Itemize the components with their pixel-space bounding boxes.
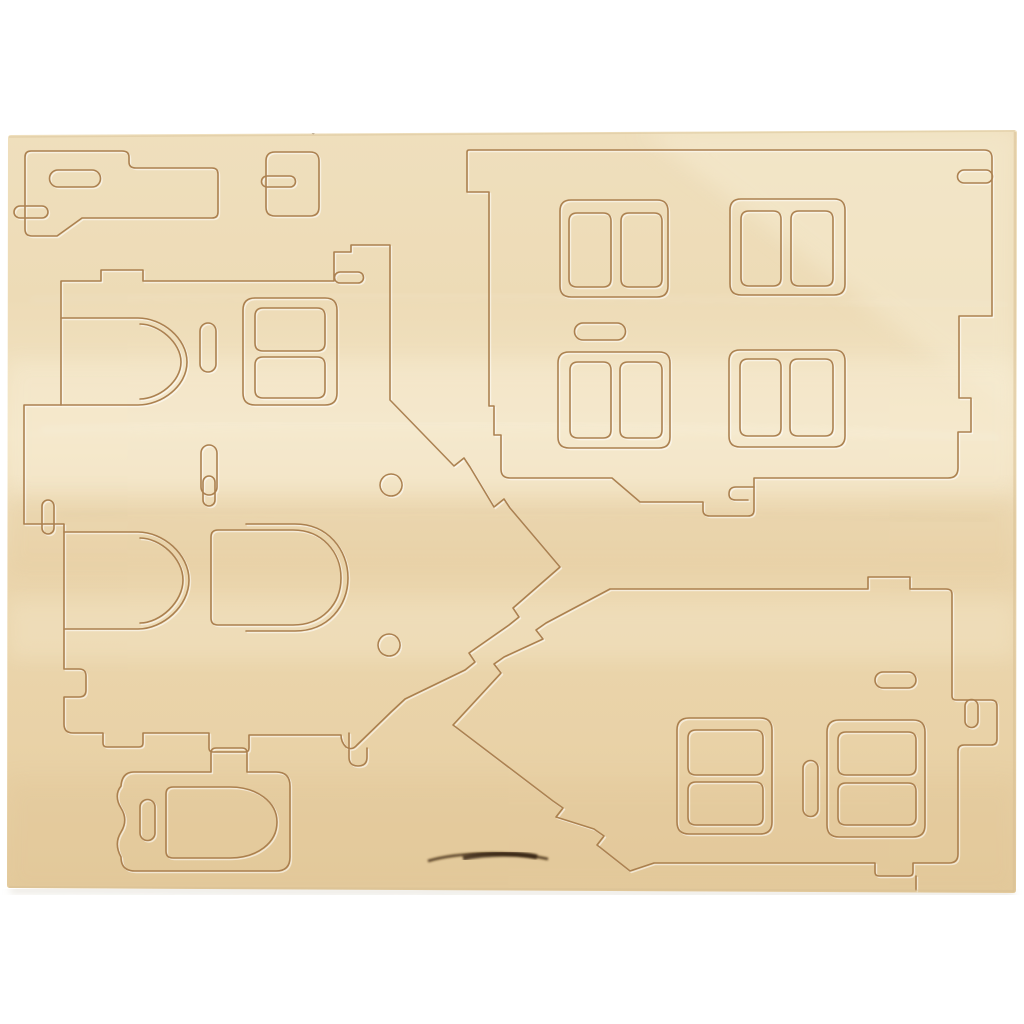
grain-warm-band	[7, 492, 1017, 575]
grain-low-light-band	[7, 600, 1017, 660]
sheet-edge-right	[1014, 132, 1015, 892]
wood-speck	[311, 130, 315, 134]
photo-of-plywood-kit-sheet	[0, 0, 1024, 1024]
